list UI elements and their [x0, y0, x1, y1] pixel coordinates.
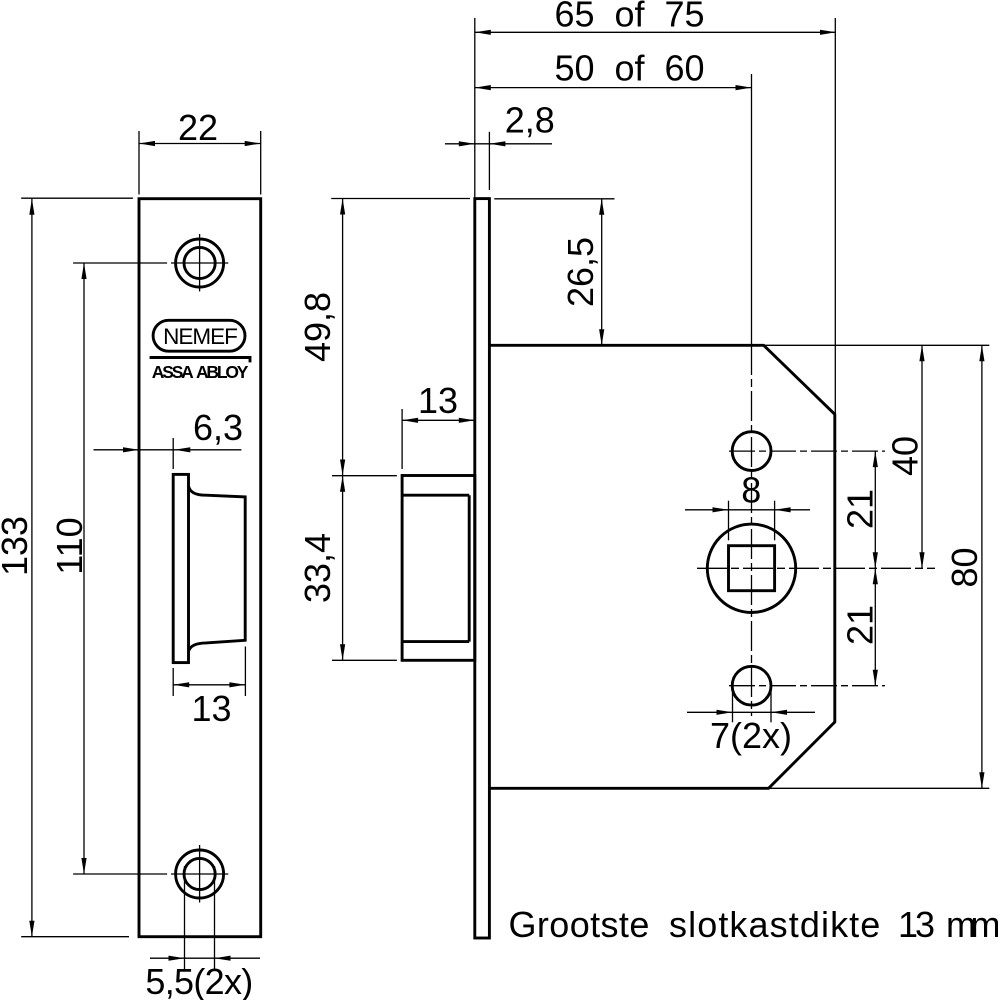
svg-text:21: 21 — [840, 489, 881, 529]
svg-text:6,3: 6,3 — [193, 407, 243, 448]
svg-text:110: 110 — [49, 517, 90, 574]
svg-text:7(2x): 7(2x) — [710, 715, 792, 756]
svg-text:5,5(2x): 5,5(2x) — [145, 961, 252, 1000]
svg-text:65 of 75: 65 of 75 — [554, 0, 704, 35]
svg-text:133: 133 — [0, 516, 35, 576]
svg-text:22: 22 — [178, 107, 218, 148]
svg-text:80: 80 — [944, 547, 985, 587]
svg-text:33,4: 33,4 — [297, 533, 338, 603]
svg-text:49,8: 49,8 — [297, 292, 338, 362]
svg-text:13: 13 — [191, 688, 231, 729]
svg-text:26,5: 26,5 — [560, 237, 601, 307]
svg-text:2,8: 2,8 — [505, 99, 555, 140]
svg-text:ASSA ABLOY: ASSA ABLOY — [152, 362, 249, 382]
svg-text:8: 8 — [741, 470, 761, 511]
svg-text:Grootsteslotkastdikte13mm: Grootsteslotkastdikte13mm — [509, 904, 998, 945]
svg-text:21: 21 — [840, 605, 881, 645]
svg-text:50 of 60: 50 of 60 — [554, 48, 704, 89]
svg-text:40: 40 — [885, 436, 926, 476]
svg-text:NEMEF: NEMEF — [163, 324, 237, 349]
svg-text:13: 13 — [418, 380, 458, 421]
